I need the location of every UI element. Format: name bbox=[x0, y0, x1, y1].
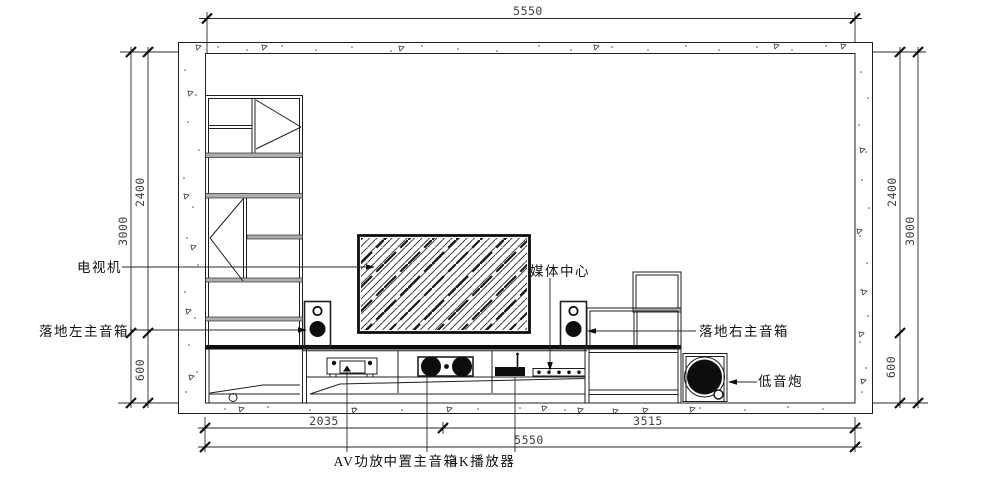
tweeter bbox=[313, 307, 321, 315]
bass-port bbox=[714, 390, 723, 399]
label-center-speaker: 中置主音箱 bbox=[384, 453, 459, 469]
right-main-speaker bbox=[561, 302, 587, 348]
up-arrow-mark bbox=[343, 366, 351, 372]
right-shelf-unit bbox=[587, 272, 681, 349]
label-tv: 电视机 bbox=[77, 260, 122, 275]
concrete-triangle-marks bbox=[184, 44, 867, 414]
dim-right-console: 600 bbox=[884, 356, 898, 378]
4k-player bbox=[495, 353, 525, 376]
media-center-device bbox=[533, 369, 585, 377]
wall-texture bbox=[183, 44, 870, 414]
leader-subwoofer bbox=[728, 379, 757, 385]
cable-hole bbox=[229, 394, 237, 402]
cad-drawing: 5550 2400 3000 600 2400 3000 600 2035 35… bbox=[0, 0, 1006, 494]
subwoofer-driver bbox=[687, 360, 722, 395]
label-media-center: 媒体中心 bbox=[530, 264, 590, 279]
dim-bottom-right: 3515 bbox=[633, 414, 663, 428]
subwoofer-unit bbox=[683, 354, 727, 402]
tv-screen bbox=[359, 236, 530, 333]
dimension-top bbox=[199, 12, 862, 53]
woofer bbox=[566, 321, 582, 337]
dim-bottom-total: 5550 bbox=[514, 433, 544, 447]
tv-console bbox=[205, 345, 681, 403]
dim-top-total: 5550 bbox=[513, 4, 543, 18]
elevation-drawing-canvas: 5550 2400 3000 600 2400 3000 600 2035 35… bbox=[0, 0, 1006, 494]
leader-tv bbox=[122, 264, 375, 270]
left-main-speaker bbox=[305, 302, 331, 348]
leader-media-center bbox=[547, 278, 553, 371]
label-av-amp: AV功放 bbox=[334, 454, 385, 469]
label-4k-player: 4K播放器 bbox=[451, 454, 516, 469]
av-amplifier bbox=[327, 358, 377, 377]
center-channel-speaker bbox=[418, 357, 473, 377]
left-bookcase bbox=[206, 96, 303, 346]
dimension-right bbox=[873, 47, 928, 408]
label-subwoofer: 低音炮 bbox=[758, 373, 803, 389]
dim-right-inner: 2400 bbox=[885, 177, 899, 207]
dim-left-total: 3000 bbox=[116, 216, 130, 246]
leader-left-speaker bbox=[130, 327, 307, 333]
dim-bottom-left: 2035 bbox=[309, 414, 339, 428]
woofer bbox=[310, 321, 326, 337]
dim-left-console: 600 bbox=[133, 359, 147, 381]
dim-right-total: 3000 bbox=[903, 216, 917, 246]
label-left-speaker: 落地左主音箱 bbox=[39, 323, 129, 339]
tweeter bbox=[569, 307, 577, 315]
leader-right-speaker bbox=[587, 328, 696, 334]
dim-left-inner: 2400 bbox=[133, 177, 147, 207]
label-right-speaker: 落地右主音箱 bbox=[699, 323, 789, 339]
